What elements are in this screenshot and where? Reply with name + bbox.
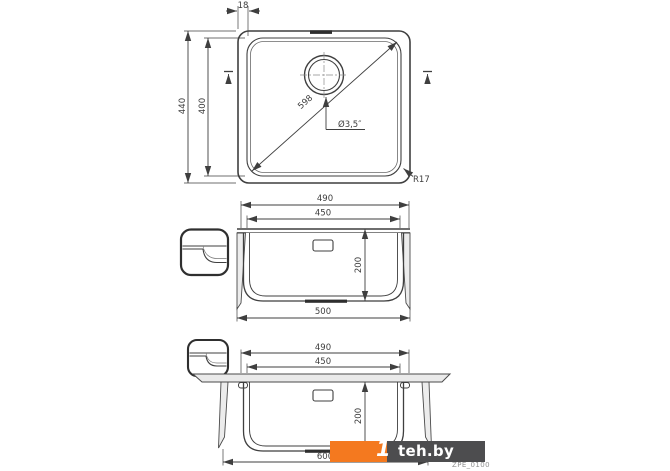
corner-radius-label: R17 [413,175,430,185]
top-view: 598 Ø3,5″ R17 18 440 400 [178,1,432,185]
overflow-slot-top [310,30,332,34]
front-section-view: 490 450 200 500 [237,194,410,322]
drain-diameter-label: Ø3,5″ [338,119,361,130]
overflow-hole [313,390,333,401]
bowl-depth-label: 400 [198,98,208,114]
drain-fitting [305,300,347,303]
mounting-clip-right [401,383,410,389]
outer-depth-label: 440 [178,98,188,114]
diagonal-dim-label: 598 [296,93,315,111]
outer-width-label: 490 [315,343,331,353]
watermark-site-label: teh.by [398,444,454,459]
bowl-width-label: 450 [315,357,331,367]
watermark-dark-bar: teh.by [387,441,485,462]
cabinet-panel-left [219,382,229,448]
drawing-canvas: 598 Ø3,5″ R17 18 440 400 [0,0,670,471]
cabinet-panel-right [422,382,432,448]
bowl-width-label: 450 [315,209,331,219]
bowl-inner-wall [250,233,398,296]
rim-detail-box-1 [181,230,228,276]
fixing-mark-right-icon [423,72,432,85]
rim-width-label: 18 [238,1,249,11]
overall-width-label: 500 [315,307,331,317]
bowl-height-label: 200 [354,257,364,273]
corner-radius-leader [404,169,414,177]
rim-detail-box-2 [188,340,228,376]
outer-width-label: 490 [317,194,333,204]
diagonal-dimension-line [252,42,397,171]
countertop-slab [193,374,450,382]
fixing-mark-left-icon [224,72,233,85]
part-code-label: ZPE_0100 [452,461,490,469]
sink-technical-drawing: 598 Ø3,5″ R17 18 440 400 [0,0,670,471]
overflow-hole [313,240,333,251]
bowl-outer-wall [244,233,404,301]
bowl-height-label: 200 [354,408,364,424]
watermark-one-glyph: 1 [376,439,391,460]
right-side-wall [402,233,411,309]
left-side-wall [237,233,246,309]
